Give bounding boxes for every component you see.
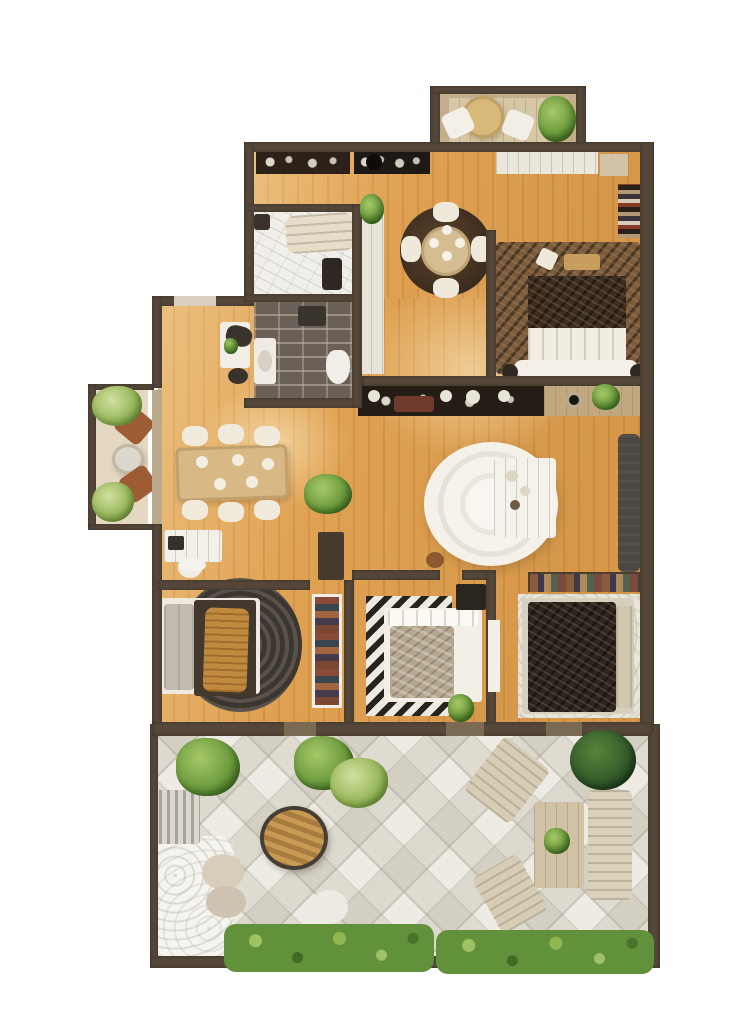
- entry-cabinet: [600, 154, 628, 176]
- plate: [196, 456, 208, 468]
- dining-table-six: [175, 444, 289, 502]
- living-pouf: [426, 552, 444, 568]
- marble-room-chaise: [285, 212, 355, 255]
- dining-chair-north: [433, 202, 459, 222]
- plate: [455, 238, 465, 248]
- plant-coffee-table: [544, 828, 570, 854]
- sofa-dish-dark: [510, 500, 520, 510]
- dining6-chair: [218, 502, 244, 522]
- serving-tray: [394, 396, 434, 412]
- vinyl-record: [566, 392, 582, 408]
- hall-desk-laptop: [168, 536, 184, 550]
- plant-bedroom-b: [448, 694, 474, 722]
- plant-terrace-dark: [570, 730, 636, 790]
- dining6-chair: [254, 500, 280, 520]
- master-bed-tray: [564, 254, 600, 270]
- plate: [214, 478, 226, 490]
- bedroom-a-shelf: [312, 594, 342, 708]
- bedroom-a-ceiling-lamp: [178, 558, 206, 572]
- wall-bedroom-b-top-a: [352, 570, 440, 580]
- hedge-bottom-left: [224, 924, 434, 972]
- marble-room-floor-lamp: [322, 258, 342, 290]
- sofa-dish: [520, 486, 530, 496]
- bathroom-sink: [258, 350, 272, 372]
- bedroom-a-pillows: [164, 604, 194, 690]
- bedroom-c-wardrobe: [528, 572, 640, 592]
- dining-chair-west: [401, 236, 421, 262]
- tv-wall-unit: [618, 434, 640, 572]
- wall-master-left: [486, 230, 496, 382]
- wall-right: [640, 142, 654, 732]
- master-bed-bench: [514, 360, 638, 376]
- dish: [466, 390, 480, 404]
- terrace-door-threshold: [546, 722, 582, 736]
- floor-plan-stage: [0, 0, 742, 1024]
- bedroom-a-blanket: [203, 607, 250, 692]
- bedroom-bc-door-leaf: [488, 620, 500, 692]
- dish: [368, 390, 380, 402]
- entrance-threshold: [174, 296, 216, 306]
- balcony-door-threshold: [152, 390, 162, 524]
- hedge-bottom-right: [436, 930, 654, 974]
- terrace-ottoman: [202, 854, 244, 890]
- wall-terrace-left: [150, 724, 158, 964]
- wall-kitchen-marble-divider: [244, 204, 360, 212]
- shower-mat: [298, 306, 326, 326]
- marble-room-corner-item: [254, 214, 270, 230]
- bedroom-b-blanket: [390, 626, 454, 698]
- wall-bedroom-ab-divider: [344, 580, 354, 732]
- kitchen-counter: [256, 150, 350, 174]
- wall-bathroom-right: [352, 204, 362, 408]
- wall-bedroom-b-top-b: [462, 570, 488, 580]
- plant-console: [592, 384, 620, 410]
- sofa-side-table: [494, 458, 556, 538]
- living-closet: [360, 214, 384, 374]
- entry-sideboard: [496, 152, 598, 174]
- dining-chair-south: [433, 278, 459, 298]
- plate: [246, 476, 258, 488]
- wall-marble-brick-divider: [244, 294, 356, 302]
- bedroom-b-tv-stand: [456, 584, 486, 610]
- dining6-chair: [182, 500, 208, 520]
- plant-dining: [304, 474, 352, 514]
- wall-terrace-right: [648, 724, 660, 968]
- wall-left-b: [152, 524, 162, 724]
- plant-balcony-top: [538, 96, 576, 142]
- terrace-door-threshold: [284, 722, 316, 736]
- dining6-chair: [182, 426, 208, 446]
- sofa-dish: [506, 470, 518, 482]
- wall-bathroom-bottom: [244, 398, 360, 408]
- plate: [442, 225, 452, 235]
- wall-balcony-left-bottom: [88, 524, 154, 530]
- wall-top: [244, 142, 646, 152]
- wall-upper-left: [244, 142, 254, 306]
- plate: [429, 238, 439, 248]
- study-stool: [228, 368, 248, 384]
- wall-balcony-top: [430, 86, 586, 94]
- bedroom-c-duvet: [528, 602, 616, 712]
- plant-study-desk: [224, 338, 238, 354]
- terrace-door-threshold: [446, 722, 484, 736]
- cooktop-burner: [366, 154, 382, 170]
- plate: [262, 458, 274, 470]
- bedroom-b-pillows: [388, 610, 478, 626]
- dish: [498, 390, 510, 402]
- toilet: [326, 350, 350, 384]
- plate: [442, 251, 452, 261]
- hall-cabinet: [318, 532, 344, 580]
- terrace-rattan-table: [260, 806, 328, 870]
- plate: [232, 454, 244, 466]
- master-bed-duvet: [528, 276, 626, 330]
- dish: [440, 390, 452, 402]
- wall-bedroom-a-top: [158, 580, 310, 590]
- dining6-chair: [254, 426, 280, 446]
- plant-kitchen-floor: [360, 194, 384, 224]
- dining6-chair: [218, 424, 244, 444]
- terrace-sofa: [588, 790, 632, 900]
- wall-left-a: [152, 296, 162, 388]
- terrace-ottoman: [206, 886, 246, 918]
- bedroom-c-pillow-strip: [616, 606, 634, 708]
- kitchen-island-counter: [358, 386, 544, 416]
- master-wall-shelf: [618, 184, 642, 238]
- terrace-bench: [154, 790, 200, 844]
- terrace-pouf: [310, 890, 348, 924]
- plant-terrace-top-left: [176, 738, 240, 796]
